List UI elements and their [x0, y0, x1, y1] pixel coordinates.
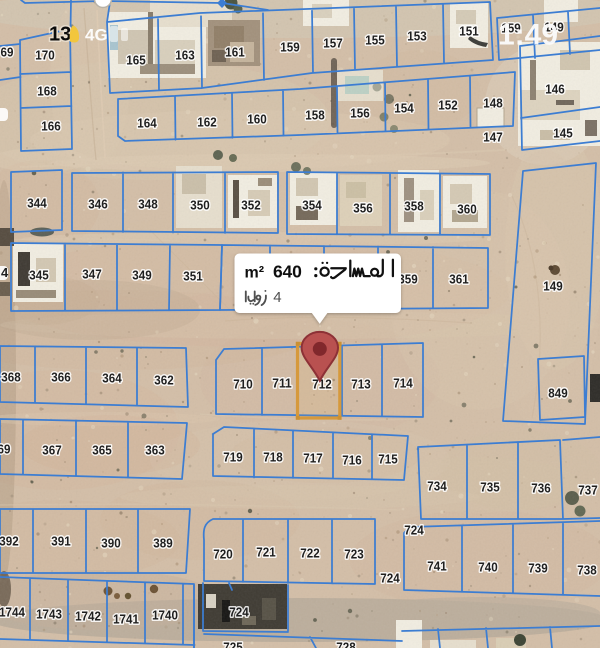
- svg-text:722: 722: [300, 546, 319, 561]
- svg-text:168: 168: [37, 84, 56, 99]
- svg-text:735: 735: [480, 480, 499, 495]
- svg-text:147: 147: [483, 130, 502, 145]
- svg-text:1741: 1741: [113, 612, 139, 627]
- svg-text:740: 740: [478, 560, 497, 575]
- svg-text:145: 145: [553, 126, 572, 141]
- svg-text:724: 724: [380, 571, 400, 586]
- svg-text:719: 719: [223, 450, 242, 465]
- svg-text:368: 368: [1, 370, 20, 385]
- svg-text:170: 170: [35, 48, 54, 63]
- svg-text:715: 715: [378, 452, 397, 467]
- svg-text:347: 347: [82, 267, 101, 282]
- svg-text:351: 351: [183, 269, 202, 284]
- svg-text:713: 713: [351, 377, 370, 392]
- svg-text:725: 725: [223, 640, 242, 648]
- svg-text:723: 723: [344, 547, 363, 562]
- svg-text:352: 352: [241, 198, 260, 213]
- svg-text:162: 162: [197, 115, 216, 130]
- svg-text:360: 360: [457, 202, 476, 217]
- svg-text:152: 152: [438, 98, 457, 113]
- svg-text:1742: 1742: [75, 609, 101, 624]
- svg-text:m²: m²: [245, 264, 265, 281]
- svg-text:155: 155: [365, 33, 384, 48]
- svg-text:166: 166: [41, 119, 60, 134]
- svg-text:718: 718: [263, 450, 282, 465]
- svg-text:1744: 1744: [0, 605, 25, 620]
- svg-text:157: 157: [323, 36, 342, 51]
- svg-text:716: 716: [342, 453, 361, 468]
- svg-text:1743: 1743: [36, 607, 62, 622]
- svg-text:346: 346: [88, 197, 107, 212]
- svg-text:156: 156: [350, 106, 369, 121]
- svg-text:161: 161: [225, 45, 244, 60]
- svg-text:728: 728: [336, 640, 355, 648]
- svg-text:348: 348: [138, 197, 157, 212]
- svg-text:738: 738: [577, 563, 596, 578]
- svg-text:146: 146: [545, 82, 564, 97]
- svg-text:737: 737: [578, 483, 597, 498]
- svg-text:711: 711: [272, 376, 291, 391]
- svg-text:4: 4: [1, 265, 9, 280]
- svg-text:154: 154: [394, 101, 414, 116]
- svg-text:710: 710: [233, 377, 252, 392]
- svg-text:724: 724: [404, 523, 424, 538]
- svg-text:349: 349: [132, 268, 151, 283]
- svg-text:736: 736: [531, 481, 550, 496]
- svg-text:1:49: 1:49: [498, 19, 558, 52]
- svg-text:164: 164: [137, 116, 157, 131]
- svg-text:361: 361: [449, 272, 468, 287]
- svg-text:364: 364: [102, 371, 122, 386]
- svg-text:734: 734: [427, 479, 447, 494]
- svg-text:344: 344: [27, 196, 47, 211]
- svg-text:158: 158: [305, 108, 324, 123]
- svg-text:389: 389: [153, 536, 172, 551]
- svg-text:849: 849: [548, 386, 567, 401]
- svg-text:717: 717: [303, 451, 322, 466]
- svg-text:363: 363: [145, 443, 164, 458]
- svg-text:359: 359: [398, 272, 417, 287]
- svg-text:1740: 1740: [152, 608, 178, 623]
- svg-text:148: 148: [483, 96, 502, 111]
- svg-text:159: 159: [280, 40, 299, 55]
- svg-text:13: 13: [49, 24, 71, 46]
- svg-text:345: 345: [29, 268, 48, 283]
- svg-text:721: 721: [256, 545, 275, 560]
- svg-text:720: 720: [213, 547, 232, 562]
- svg-text:739: 739: [528, 561, 547, 576]
- svg-text:358: 358: [404, 199, 423, 214]
- svg-text:714: 714: [393, 376, 413, 391]
- svg-text:640: 640: [273, 261, 302, 281]
- svg-text:69: 69: [1, 45, 14, 60]
- svg-text:149: 149: [543, 279, 562, 294]
- svg-text:724: 724: [229, 605, 249, 620]
- svg-text:4: 4: [273, 289, 281, 306]
- svg-text:365: 365: [92, 443, 111, 458]
- svg-text:151: 151: [459, 24, 478, 39]
- svg-text:4G: 4G: [85, 26, 108, 45]
- svg-text:354: 354: [302, 198, 322, 213]
- svg-text:366: 366: [51, 370, 70, 385]
- svg-text:165: 165: [126, 53, 145, 68]
- svg-text:153: 153: [407, 29, 426, 44]
- svg-text:367: 367: [42, 443, 61, 458]
- svg-text:356: 356: [353, 201, 372, 216]
- svg-text:362: 362: [154, 373, 173, 388]
- svg-text:391: 391: [51, 534, 70, 549]
- svg-text:350: 350: [190, 198, 209, 213]
- svg-text:160: 160: [247, 112, 266, 127]
- svg-text:741: 741: [427, 559, 446, 574]
- svg-text:390: 390: [101, 536, 120, 551]
- svg-text:392: 392: [0, 534, 19, 549]
- svg-text:163: 163: [175, 48, 194, 63]
- svg-text:69: 69: [0, 442, 10, 457]
